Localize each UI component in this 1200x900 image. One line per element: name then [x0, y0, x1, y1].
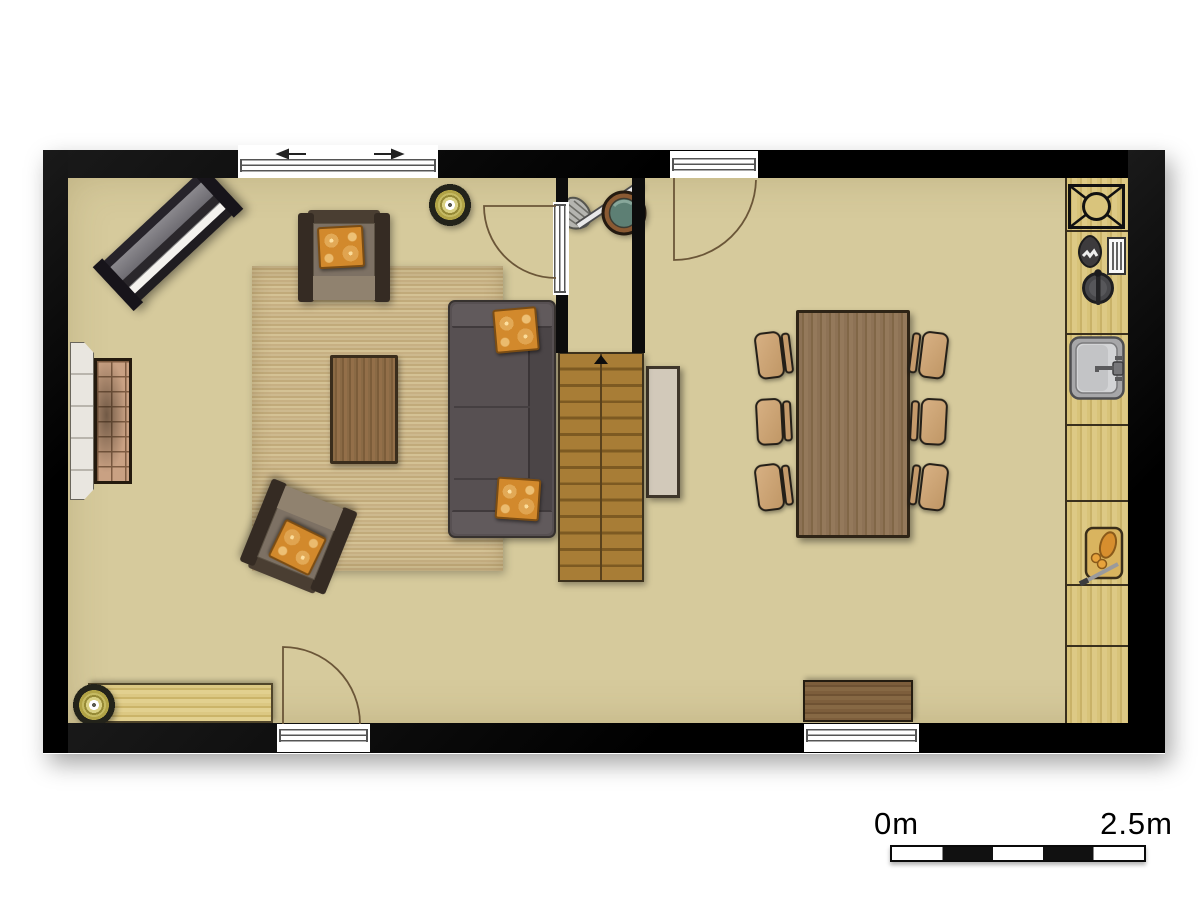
threshold-sill	[554, 204, 566, 293]
slide-arrows-icon	[238, 146, 438, 160]
dining-chair	[753, 459, 799, 515]
window-bottom	[804, 724, 919, 752]
sofa-pillow	[492, 306, 540, 354]
scale-end-label: 2.5m	[1048, 806, 1173, 842]
armchair-seat-front	[313, 276, 375, 300]
coffee-machine	[1079, 236, 1101, 267]
armchair	[298, 210, 390, 302]
low-bench	[803, 680, 913, 722]
sofa-pillow	[495, 477, 542, 522]
bread-slice	[1098, 560, 1107, 569]
door-threshold-hall	[553, 202, 569, 295]
sliding-window	[238, 145, 438, 178]
door-threshold-bottom	[277, 724, 370, 752]
hallway-wall	[556, 295, 568, 353]
floor-plan: 0m 2.5m	[0, 0, 1200, 900]
wall-top	[43, 150, 1165, 178]
window-glass	[806, 729, 917, 742]
fireplace-hearth	[94, 358, 132, 484]
ceiling-light	[72, 683, 116, 727]
faucet-handle	[1115, 356, 1122, 360]
window-glass	[240, 159, 436, 172]
ceiling-light	[428, 183, 472, 227]
dining-chair	[753, 327, 799, 383]
threshold-sill	[672, 158, 756, 171]
kitchen-sink	[1069, 336, 1125, 400]
wall-left	[43, 150, 68, 753]
armchair-arm	[374, 213, 390, 302]
wall-right	[1128, 150, 1165, 753]
chair-seat	[755, 398, 784, 446]
wall-bottom	[43, 723, 1165, 753]
fireplace-mantel	[70, 342, 94, 500]
pot	[1080, 268, 1116, 306]
dining-chair	[755, 395, 798, 449]
dining-chair	[907, 395, 950, 449]
chair-seat	[919, 398, 948, 446]
hallway-wall	[632, 176, 645, 353]
staircase	[558, 352, 644, 582]
armchair-pillow	[317, 225, 365, 269]
dining-table	[796, 310, 910, 538]
chair-back	[782, 400, 793, 441]
hallway-wall	[556, 176, 568, 203]
scale-start-label: 0m	[874, 806, 964, 842]
counter-divider	[1067, 333, 1128, 335]
counter-divider	[1067, 500, 1128, 502]
sofa-seam	[454, 406, 530, 408]
faucet-base	[1113, 362, 1123, 375]
chair-seat	[917, 462, 950, 512]
dining-chair	[905, 459, 951, 515]
extractor-unit	[1068, 184, 1125, 229]
staircase-centerline	[600, 354, 602, 580]
scale-bar	[890, 845, 1146, 862]
bread-cutting-board	[1078, 526, 1128, 586]
faucet-handle	[1115, 377, 1122, 381]
counter-divider	[1067, 424, 1128, 426]
fireplace-smoke-stain	[97, 361, 129, 481]
dining-chair	[905, 327, 951, 383]
coffee-table	[330, 355, 398, 464]
threshold-sill	[279, 729, 368, 742]
sofa	[448, 300, 556, 538]
counter-divider	[1067, 645, 1128, 647]
door-threshold-top	[670, 151, 758, 178]
knife-handle	[1080, 580, 1088, 584]
armchair-arm	[298, 213, 314, 302]
staircase-up-arrow	[594, 355, 608, 364]
chair-seat	[917, 330, 950, 380]
hall-cabinet	[646, 366, 680, 498]
